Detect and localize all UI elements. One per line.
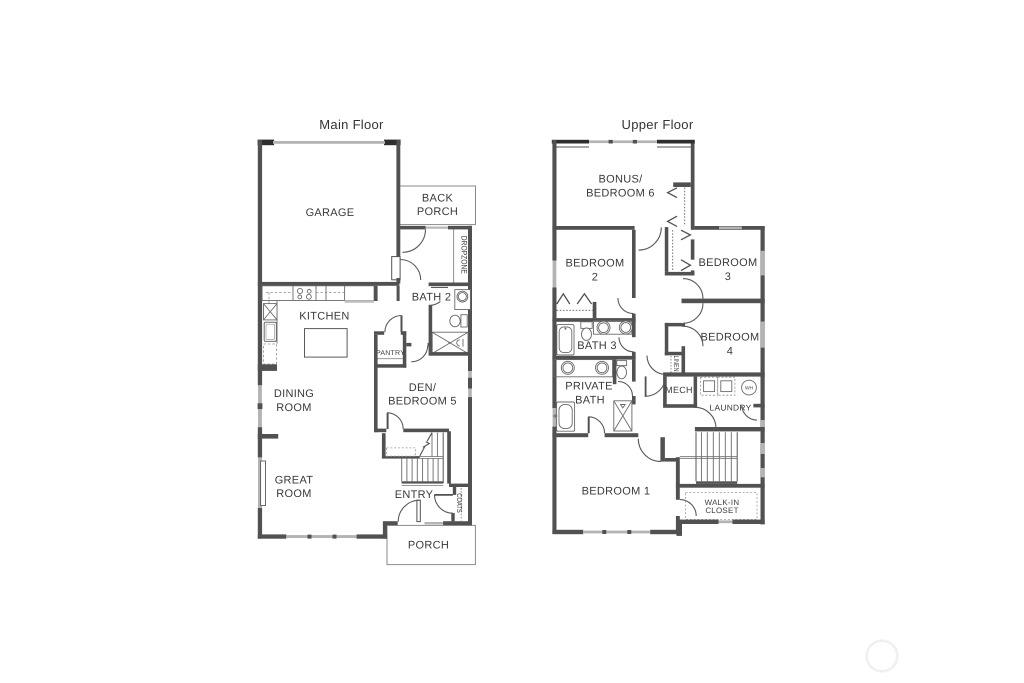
svg-text:MECH: MECH [665, 385, 693, 395]
svg-text:LAUNDRY: LAUNDRY [710, 403, 752, 413]
svg-text:BATH: BATH [575, 394, 605, 406]
svg-text:BEDROOM 1: BEDROOM 1 [582, 486, 651, 498]
svg-text:BEDROOM: BEDROOM [699, 257, 758, 269]
svg-text:GREAT: GREAT [275, 475, 314, 487]
svg-text:BONUS/: BONUS/ [599, 174, 644, 186]
svg-text:2: 2 [592, 271, 598, 283]
svg-text:BEDROOM: BEDROOM [701, 331, 760, 343]
svg-text:PANTRY: PANTRY [376, 350, 405, 357]
svg-text:ENTRY: ENTRY [395, 489, 434, 501]
svg-text:Upper Floor: Upper Floor [622, 117, 694, 132]
svg-text:PORCH: PORCH [408, 540, 449, 552]
svg-text:BEDROOM 5: BEDROOM 5 [388, 396, 457, 408]
svg-text:CLOSET: CLOSET [705, 506, 738, 515]
svg-text:ROOM: ROOM [276, 488, 311, 500]
svg-text:WH: WH [745, 386, 754, 392]
svg-text:PRIVATE: PRIVATE [565, 380, 613, 392]
svg-text:BACK: BACK [422, 193, 454, 205]
svg-text:DEN/: DEN/ [409, 382, 437, 394]
svg-text:PORCH: PORCH [417, 206, 458, 218]
svg-text:KITCHEN: KITCHEN [299, 311, 349, 323]
svg-text:DROPZONE: DROPZONE [460, 236, 469, 274]
svg-text:LINEN: LINEN [672, 356, 679, 372]
svg-text:BEDROOM 6: BEDROOM 6 [586, 188, 655, 200]
svg-text:COATS: COATS [455, 493, 464, 513]
svg-text:BATH 3: BATH 3 [577, 340, 617, 352]
svg-text:BEDROOM: BEDROOM [566, 258, 625, 270]
svg-text:DINING: DINING [274, 388, 314, 400]
svg-text:ROOM: ROOM [276, 402, 311, 414]
svg-text:BATH 2: BATH 2 [412, 291, 452, 303]
svg-text:GARAGE: GARAGE [306, 207, 355, 219]
svg-text:3: 3 [725, 271, 731, 283]
svg-text:Main Floor: Main Floor [319, 117, 384, 132]
svg-text:4: 4 [727, 346, 733, 358]
